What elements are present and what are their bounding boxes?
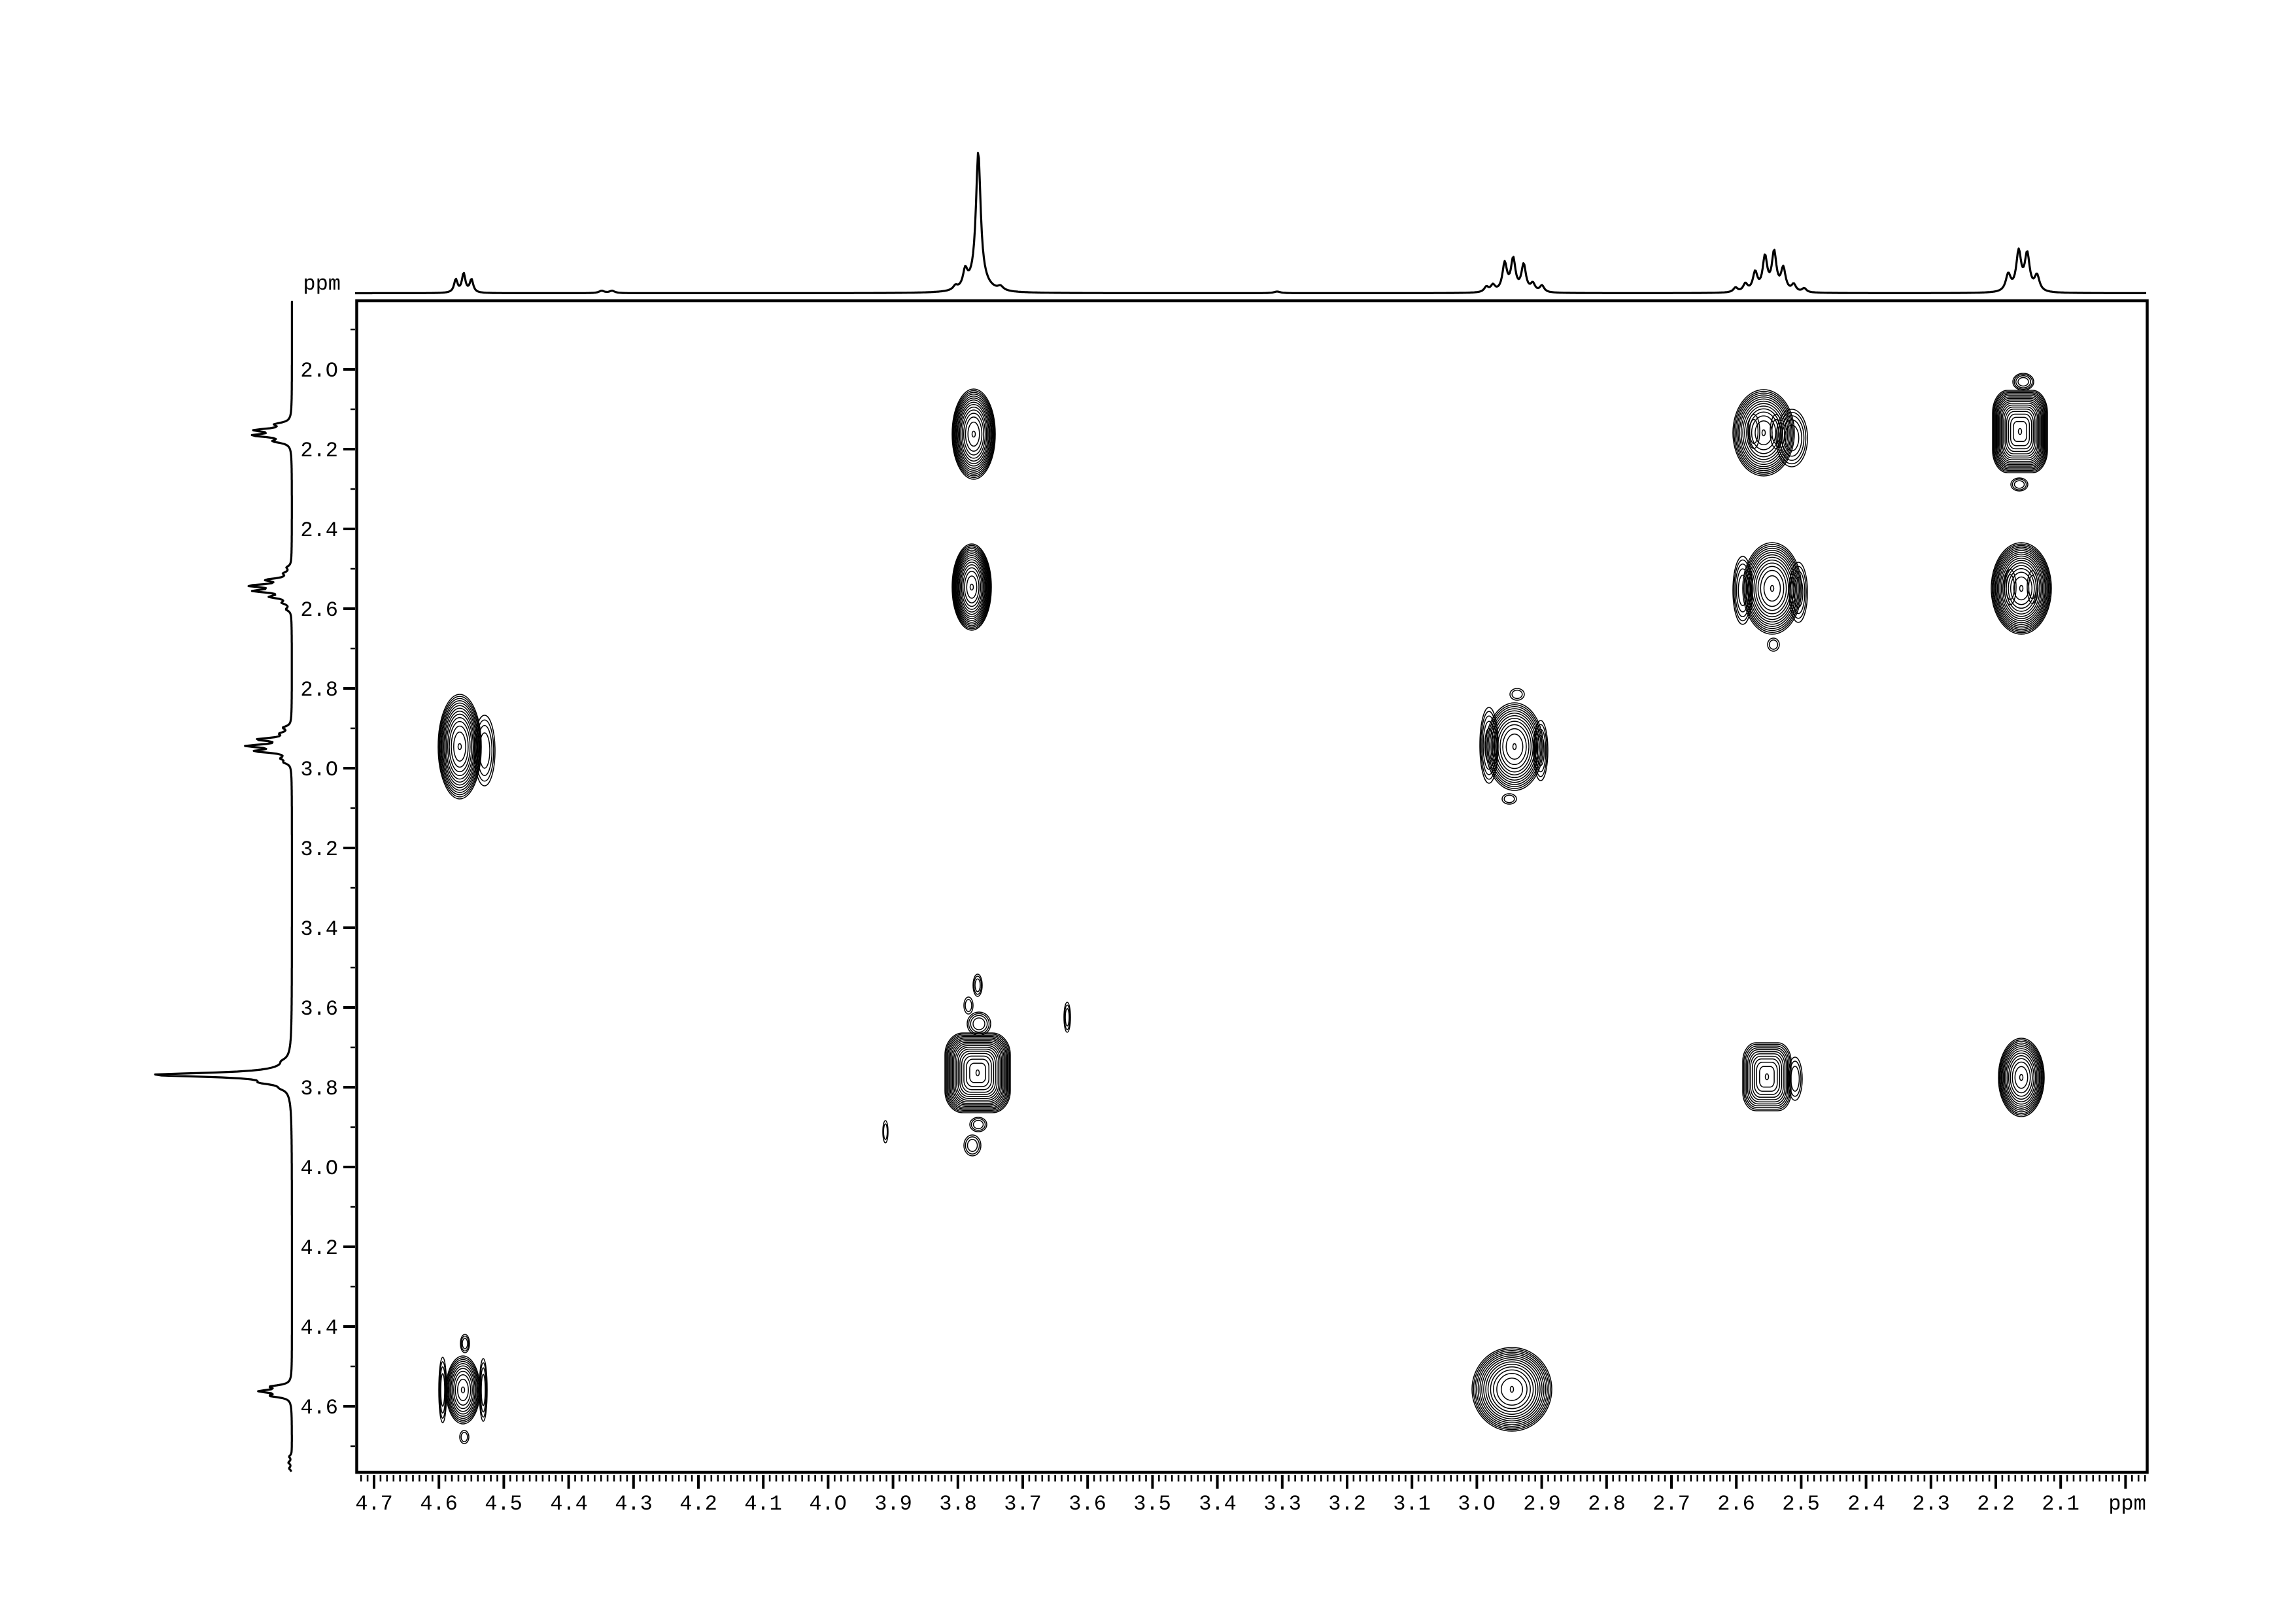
svg-text:2.7: 2.7	[1652, 1492, 1690, 1516]
svg-text:3.O: 3.O	[1458, 1492, 1496, 1516]
svg-text:2.8: 2.8	[300, 678, 338, 702]
svg-text:3.8: 3.8	[300, 1077, 338, 1101]
svg-text:2.3: 2.3	[1912, 1492, 1950, 1516]
svg-text:4.2: 4.2	[300, 1236, 338, 1260]
svg-text:ppm: ppm	[2108, 1492, 2146, 1516]
svg-text:2.8: 2.8	[1588, 1492, 1626, 1516]
svg-text:3.4: 3.4	[1199, 1492, 1237, 1516]
svg-text:2.5: 2.5	[1782, 1492, 1820, 1516]
svg-text:4.7: 4.7	[355, 1492, 393, 1516]
svg-text:2.9: 2.9	[1523, 1492, 1561, 1516]
svg-text:3.2: 3.2	[300, 837, 338, 862]
svg-text:3.6: 3.6	[1069, 1492, 1106, 1516]
svg-text:2.4: 2.4	[300, 518, 338, 543]
svg-text:4.6: 4.6	[420, 1492, 458, 1516]
svg-text:2.6: 2.6	[300, 598, 338, 622]
svg-text:4.4: 4.4	[550, 1492, 588, 1516]
svg-text:4.1: 4.1	[744, 1492, 782, 1516]
svg-text:3.7: 3.7	[1004, 1492, 1042, 1516]
svg-text:4.6: 4.6	[300, 1396, 338, 1420]
svg-text:2.4: 2.4	[1847, 1492, 1885, 1516]
svg-text:3.5: 3.5	[1133, 1492, 1171, 1516]
svg-text:2.6: 2.6	[1717, 1492, 1755, 1516]
svg-text:3.O: 3.O	[300, 758, 338, 782]
svg-text:4.5: 4.5	[485, 1492, 522, 1516]
svg-text:3.6: 3.6	[300, 997, 338, 1021]
svg-text:3.9: 3.9	[874, 1492, 912, 1516]
svg-text:3.4: 3.4	[300, 917, 338, 941]
svg-text:4.4: 4.4	[300, 1316, 338, 1340]
svg-text:3.1: 3.1	[1393, 1492, 1431, 1516]
svg-text:2.2: 2.2	[1977, 1492, 2015, 1516]
svg-text:2.1: 2.1	[2042, 1492, 2080, 1516]
svg-text:ppm: ppm	[303, 272, 341, 296]
svg-text:3.8: 3.8	[939, 1492, 977, 1516]
svg-text:4.2: 4.2	[679, 1492, 717, 1516]
svg-text:3.2: 3.2	[1328, 1492, 1366, 1516]
svg-text:4.O: 4.O	[809, 1492, 847, 1516]
svg-text:4.3: 4.3	[615, 1492, 653, 1516]
svg-text:2.O: 2.O	[300, 359, 338, 383]
svg-text:3.3: 3.3	[1263, 1492, 1301, 1516]
svg-text:4.O: 4.O	[300, 1157, 338, 1181]
svg-text:2.2: 2.2	[300, 439, 338, 463]
